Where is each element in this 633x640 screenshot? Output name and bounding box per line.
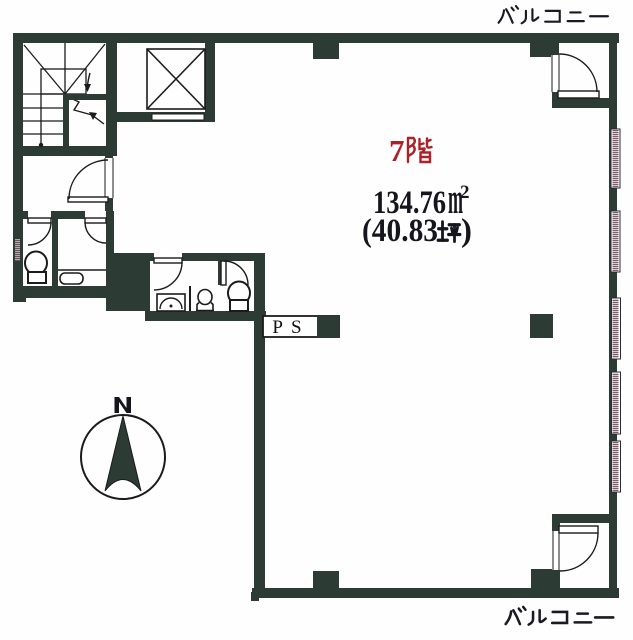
svg-text:P S: P S [272, 317, 303, 338]
svg-text:(40.83: (40.83 [362, 213, 438, 249]
svg-text:): ) [461, 213, 472, 249]
svg-text:2: 2 [460, 182, 470, 203]
svg-text:7: 7 [389, 133, 405, 168]
